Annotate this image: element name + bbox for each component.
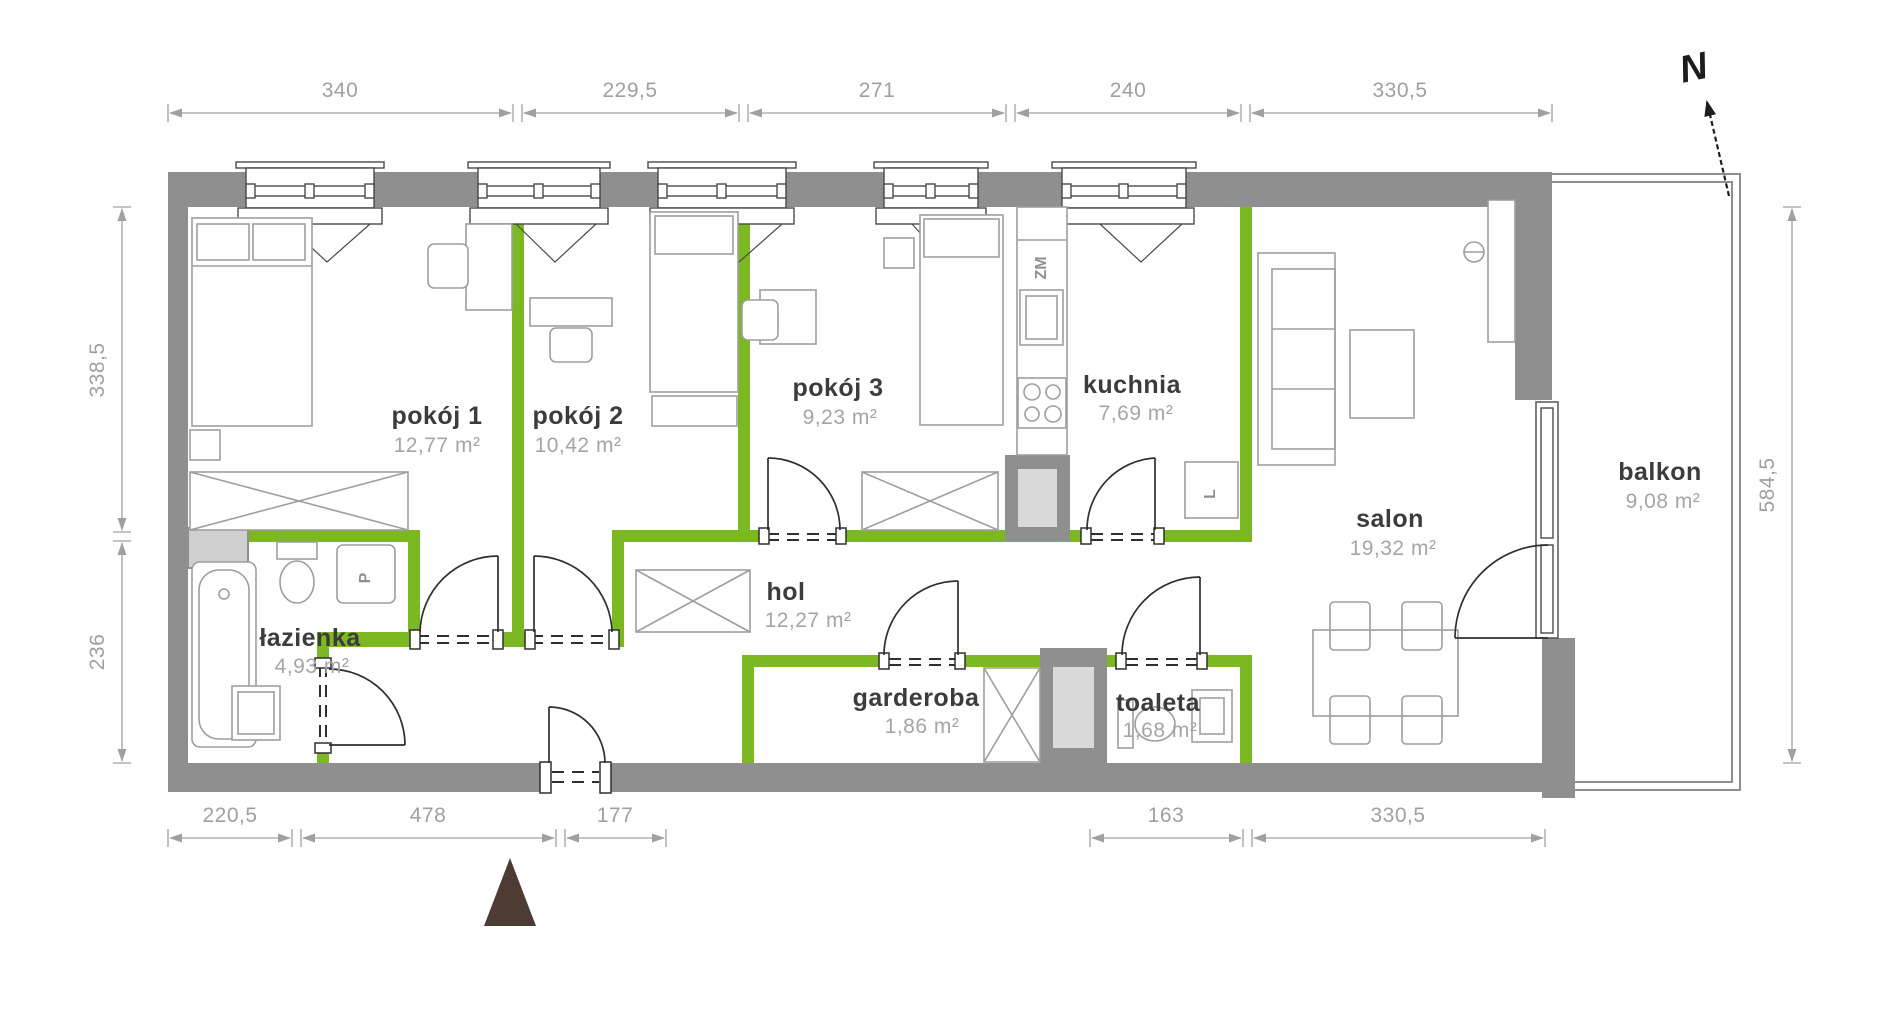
door-kuchnia xyxy=(1081,458,1164,544)
door-pokoj-3 xyxy=(759,458,846,544)
window-5 xyxy=(1052,162,1196,262)
sofa xyxy=(1258,253,1335,465)
bed-double xyxy=(192,218,312,426)
door-pokoj-2 xyxy=(525,556,619,649)
room-label-pokoj-1: pokój 1 xyxy=(391,402,482,430)
svg-text:1,86 m²: 1,86 m² xyxy=(885,715,960,738)
dimensions-left: 338,5 236 xyxy=(86,207,131,763)
dimensions-right: 584,5 xyxy=(1756,207,1801,763)
door-balcony xyxy=(1455,400,1558,638)
room-label-balkon: balkon xyxy=(1618,458,1702,486)
room-label-garderoba: garderoba xyxy=(853,684,980,712)
room-label-salon: salon xyxy=(1356,505,1424,533)
entrance-marker xyxy=(484,858,536,926)
door-toaleta xyxy=(1116,577,1207,669)
svg-text:9,08 m²: 9,08 m² xyxy=(1626,490,1701,513)
svg-text:330,5: 330,5 xyxy=(1372,79,1427,102)
svg-text:12,77 m²: 12,77 m² xyxy=(394,434,481,457)
svg-text:1,68 m²: 1,68 m² xyxy=(1123,719,1198,742)
nightstand xyxy=(190,430,220,460)
room-labels: pokój 1 12,77 m² pokój 2 10,42 m² pokój … xyxy=(259,371,1701,742)
dimensions-bottom: 220,5 478 177 163 330,5 xyxy=(168,804,1545,847)
room-label-toaleta: toaleta xyxy=(1116,689,1201,717)
svg-text:177: 177 xyxy=(597,804,634,827)
wardrobe-1 xyxy=(190,472,408,530)
coffee-table xyxy=(1350,330,1414,418)
svg-text:7,69 m²: 7,69 m² xyxy=(1099,402,1174,425)
svg-text:478: 478 xyxy=(410,804,447,827)
nightstand-3 xyxy=(884,238,914,268)
sideboard xyxy=(1464,200,1515,342)
svg-text:4,93 m²: 4,93 m² xyxy=(275,655,350,678)
svg-text:12,27 m²: 12,27 m² xyxy=(765,609,852,632)
desk-chair-3 xyxy=(742,290,816,344)
room-label-kuchnia: kuchnia xyxy=(1083,371,1182,399)
wardrobe-hall xyxy=(636,570,750,632)
room-label-pokoj-2: pokój 2 xyxy=(532,402,623,430)
door-garderoba xyxy=(879,581,965,669)
floor-plan: ZM L P pokój 1 12,77 m² pokój 2 10,42 m²… xyxy=(0,0,1900,1036)
svg-text:236: 236 xyxy=(86,634,109,671)
door-entrance xyxy=(540,707,611,793)
bed-single-2 xyxy=(650,212,738,392)
toilet-bath xyxy=(277,542,317,603)
washer-label: P xyxy=(357,572,374,583)
svg-text:163: 163 xyxy=(1148,804,1185,827)
desk-chair-2 xyxy=(530,298,612,362)
svg-text:220,5: 220,5 xyxy=(202,804,257,827)
wardrobe-3 xyxy=(862,472,998,530)
svg-text:9,23 m²: 9,23 m² xyxy=(803,406,878,429)
svg-text:330,5: 330,5 xyxy=(1370,804,1425,827)
hob xyxy=(1018,378,1066,428)
svg-text:10,42 m²: 10,42 m² xyxy=(535,434,622,457)
shower-tray xyxy=(232,686,280,740)
svg-text:584,5: 584,5 xyxy=(1756,457,1779,512)
room-label-hol: hol xyxy=(767,578,806,606)
dining-set xyxy=(1313,602,1458,744)
svg-text:240: 240 xyxy=(1110,79,1147,102)
bench-2 xyxy=(652,396,737,426)
furniture xyxy=(190,200,1515,762)
kitchen-counter xyxy=(1017,207,1067,455)
svg-text:19,32 m²: 19,32 m² xyxy=(1350,537,1437,560)
door-pokoj-1 xyxy=(410,556,503,649)
bed-single-3 xyxy=(920,215,1003,425)
dishwasher-label: ZM xyxy=(1033,256,1050,279)
svg-text:338,5: 338,5 xyxy=(86,342,109,397)
room-label-lazienka: łazienka xyxy=(259,624,361,652)
room-label-pokoj-3: pokój 3 xyxy=(792,374,883,402)
desk-chair-1 xyxy=(428,224,512,310)
dimensions-top: 340 229,5 271 240 330,5 xyxy=(168,79,1552,122)
wardrobe-garderoba xyxy=(984,668,1040,762)
svg-text:340: 340 xyxy=(322,79,359,102)
svg-text:229,5: 229,5 xyxy=(602,79,657,102)
north-label: N xyxy=(1676,45,1713,92)
svg-text:271: 271 xyxy=(859,79,896,102)
fridge-label: L xyxy=(1202,489,1219,499)
